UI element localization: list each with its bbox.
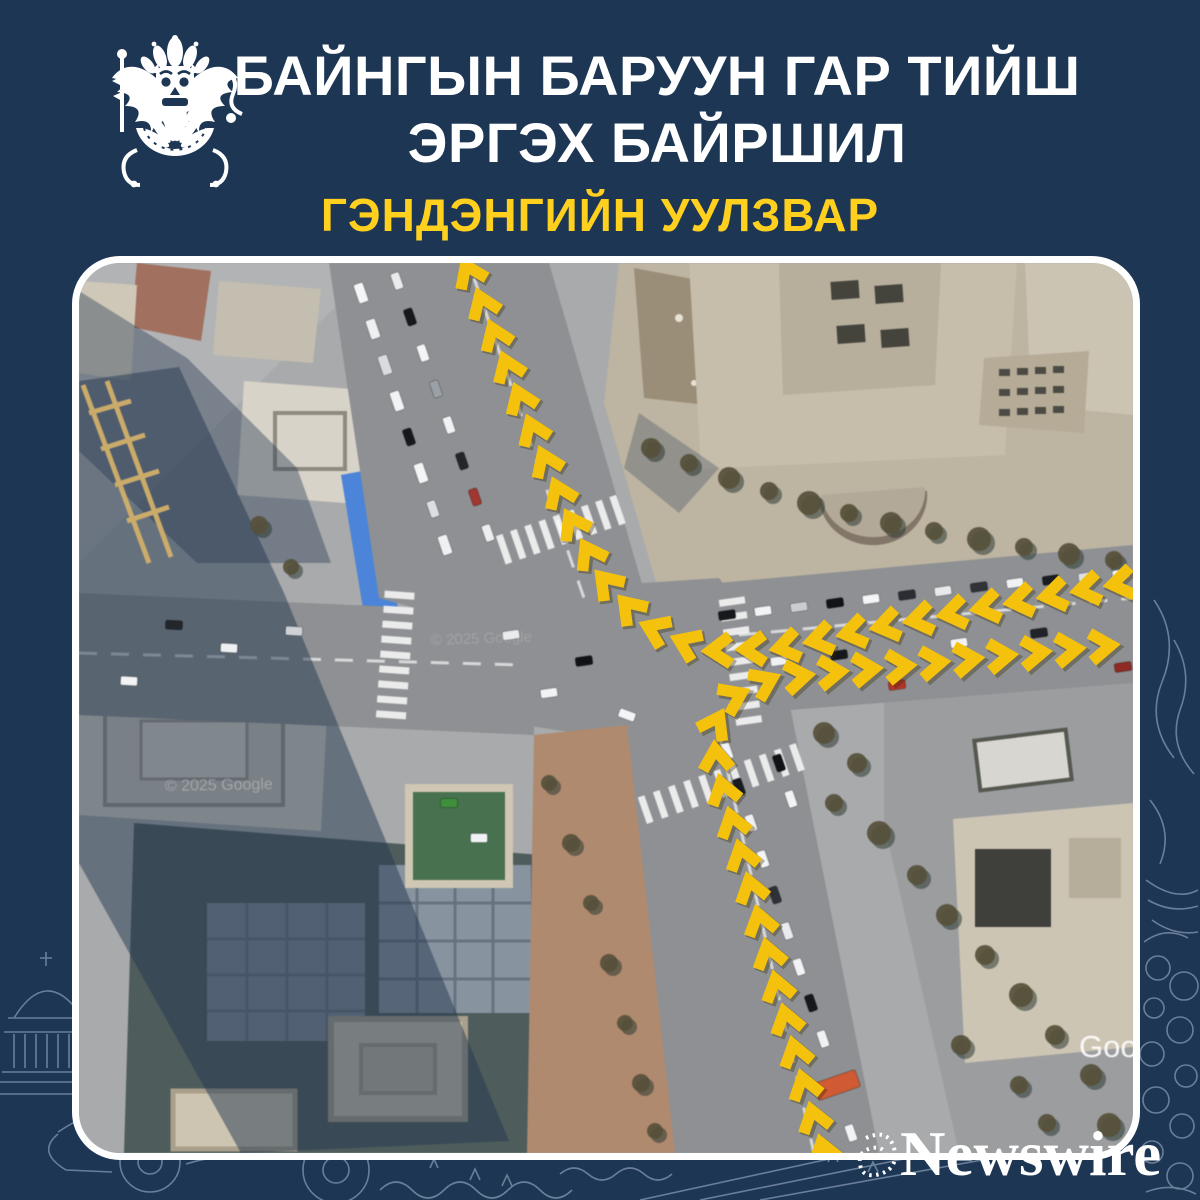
title-line-2: ЭРГЭХ БАЙРШИЛ: [217, 109, 1097, 176]
title-line-1: БАЙНГЫН БАРУУН ГАР ТИЙШ: [217, 42, 1097, 109]
satellite-map: © 2025 Google © 2025 Google Goog: [72, 256, 1140, 1160]
map-copyright: © 2025 Google: [165, 776, 273, 795]
map-copyright-faint: © 2025 Google: [431, 628, 533, 649]
watermark-swirl-icon: [856, 1126, 904, 1182]
google-attribution: Goog: [1079, 1029, 1133, 1064]
newswire-watermark: Newswire: [0, 1108, 1200, 1200]
satellite-imagery: © 2025 Google © 2025 Google Goog: [79, 263, 1133, 1153]
page-title: БАЙНГЫН БАРУУН ГАР ТИЙШ ЭРГЭХ БАЙРШИЛ: [217, 42, 1097, 176]
infographic-root: БАЙНГЫН БАРУУН ГАР ТИЙШ ЭРГЭХ БАЙРШИЛ ГЭ…: [0, 0, 1200, 1200]
brand-name: Newswire: [900, 1108, 1161, 1200]
intersection-subtitle: ГЭНДЭНГИЙН УУЛЗВАР: [0, 188, 1200, 242]
